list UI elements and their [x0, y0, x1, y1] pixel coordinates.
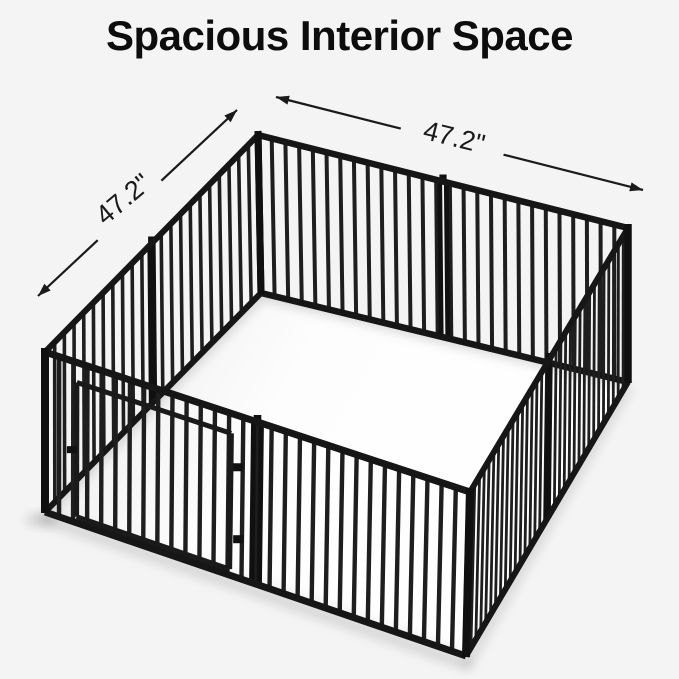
panel-seam-post: [150, 237, 155, 405]
panel-seam-post: [546, 353, 551, 521]
panel-seam-post: [440, 175, 448, 339]
hinge-tab: [233, 463, 243, 471]
width-dimension-label: 47.2": [420, 115, 488, 159]
playpen-3d-illustration: 47.2" 47.2": [0, 0, 679, 679]
hinge-tab: [233, 535, 243, 543]
depth-dimension-label: 47.2": [90, 168, 157, 231]
latch-knob: [67, 446, 77, 453]
product-infographic: Spacious Interior Space 47.2" 47.2": [0, 0, 679, 679]
